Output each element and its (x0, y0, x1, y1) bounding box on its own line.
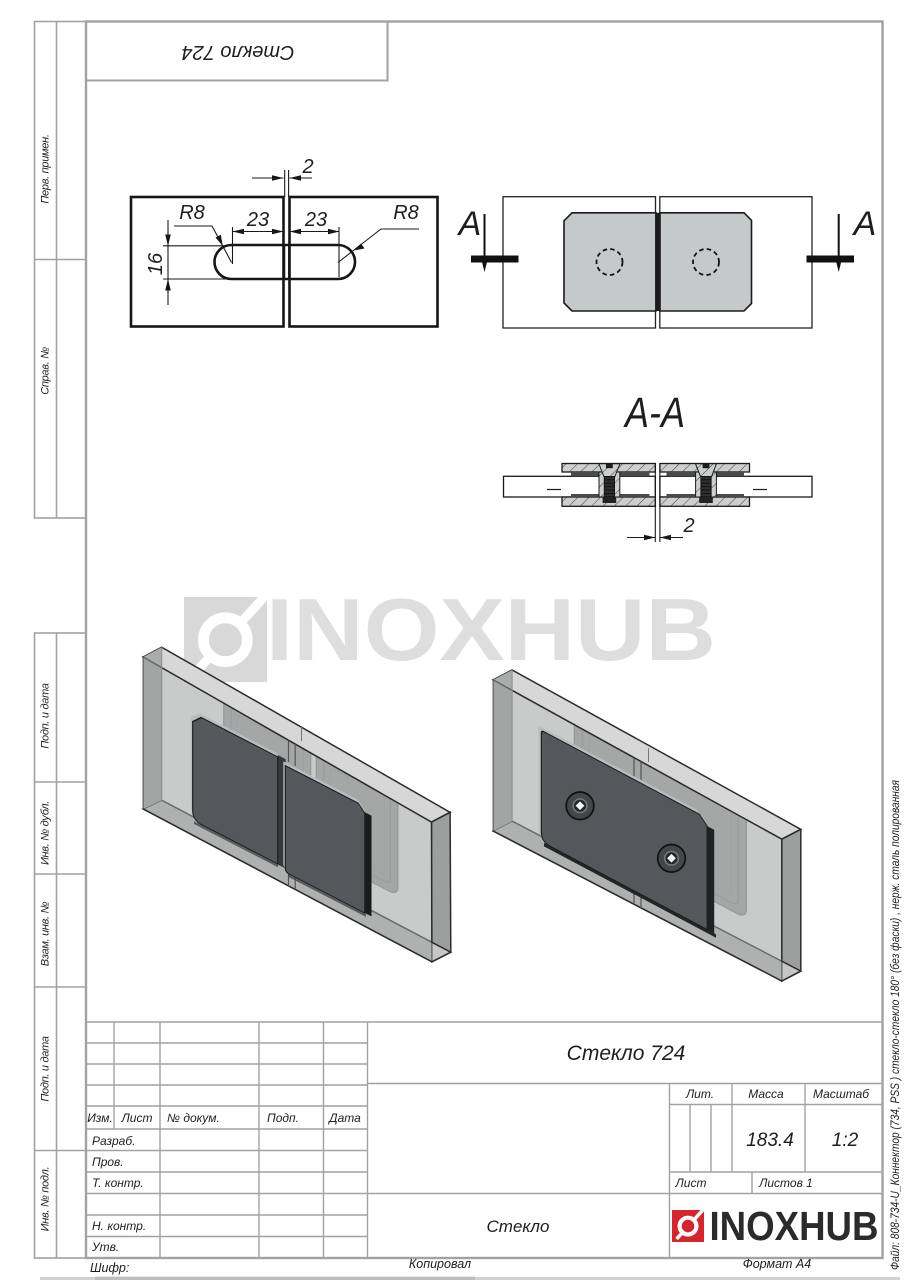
svg-text:Подп. и дата: Подп. и дата (40, 683, 52, 748)
svg-text:INOXHUB: INOXHUB (710, 1203, 879, 1249)
svg-text:Лист: Лист (121, 1111, 153, 1125)
svg-text:Стекло 724: Стекло 724 (182, 41, 295, 63)
svg-text:Взам. инв. №: Взам. инв. № (40, 901, 52, 966)
svg-text:Файл: 808-734-U_Коннектор (734: Файл: 808-734-U_Коннектор (734, PSS ) ст… (890, 780, 902, 1270)
svg-text:2: 2 (682, 515, 694, 537)
svg-text:Стекло: Стекло (487, 1217, 550, 1236)
svg-text:№ докум.: № докум. (167, 1111, 220, 1125)
svg-text:Пров.: Пров. (92, 1155, 124, 1169)
svg-text:Изм.: Изм. (87, 1111, 113, 1125)
svg-text:A: A (852, 205, 877, 243)
svg-text:2: 2 (301, 156, 313, 178)
svg-text:16: 16 (145, 252, 167, 275)
svg-text:INOXHUB: INOXHUB (266, 580, 716, 679)
svg-text:Листов 1: Листов 1 (758, 1176, 813, 1190)
svg-text:Лист: Лист (675, 1176, 707, 1190)
svg-text:Перв. примен.: Перв. примен. (40, 134, 52, 203)
svg-text:Масштаб: Масштаб (813, 1087, 870, 1101)
svg-text:Инв. № подл.: Инв. № подл. (40, 1167, 52, 1232)
svg-text:Инв. № дубл.: Инв. № дубл. (40, 801, 52, 865)
svg-text:R8: R8 (179, 202, 205, 224)
svg-text:Масса: Масса (748, 1087, 784, 1101)
svg-text:Копировал: Копировал (409, 1257, 471, 1271)
svg-text:23: 23 (304, 209, 327, 231)
svg-text:23: 23 (246, 209, 269, 231)
svg-text:Подп.: Подп. (267, 1111, 299, 1125)
svg-text:A: A (457, 205, 482, 243)
svg-text:Формат А4: Формат А4 (743, 1257, 811, 1271)
svg-text:Утв.: Утв. (91, 1240, 119, 1254)
svg-text:Подп. и дата: Подп. и дата (40, 1036, 52, 1101)
svg-text:Дата: Дата (327, 1111, 361, 1125)
svg-text:Справ. №: Справ. № (40, 347, 52, 395)
svg-text:Т. контр.: Т. контр. (92, 1176, 144, 1190)
svg-text:A-A: A-A (622, 389, 685, 437)
svg-text:R8: R8 (393, 202, 419, 224)
svg-text:Разраб.: Разраб. (92, 1134, 135, 1148)
svg-text:183.4: 183.4 (746, 1130, 794, 1151)
svg-text:Лит.: Лит. (685, 1087, 714, 1101)
svg-text:Стекло 724: Стекло 724 (567, 1042, 686, 1065)
svg-text:1:2: 1:2 (832, 1130, 859, 1151)
svg-text:Н. контр.: Н. контр. (92, 1219, 146, 1233)
svg-text:Шифр:: Шифр: (90, 1261, 129, 1275)
